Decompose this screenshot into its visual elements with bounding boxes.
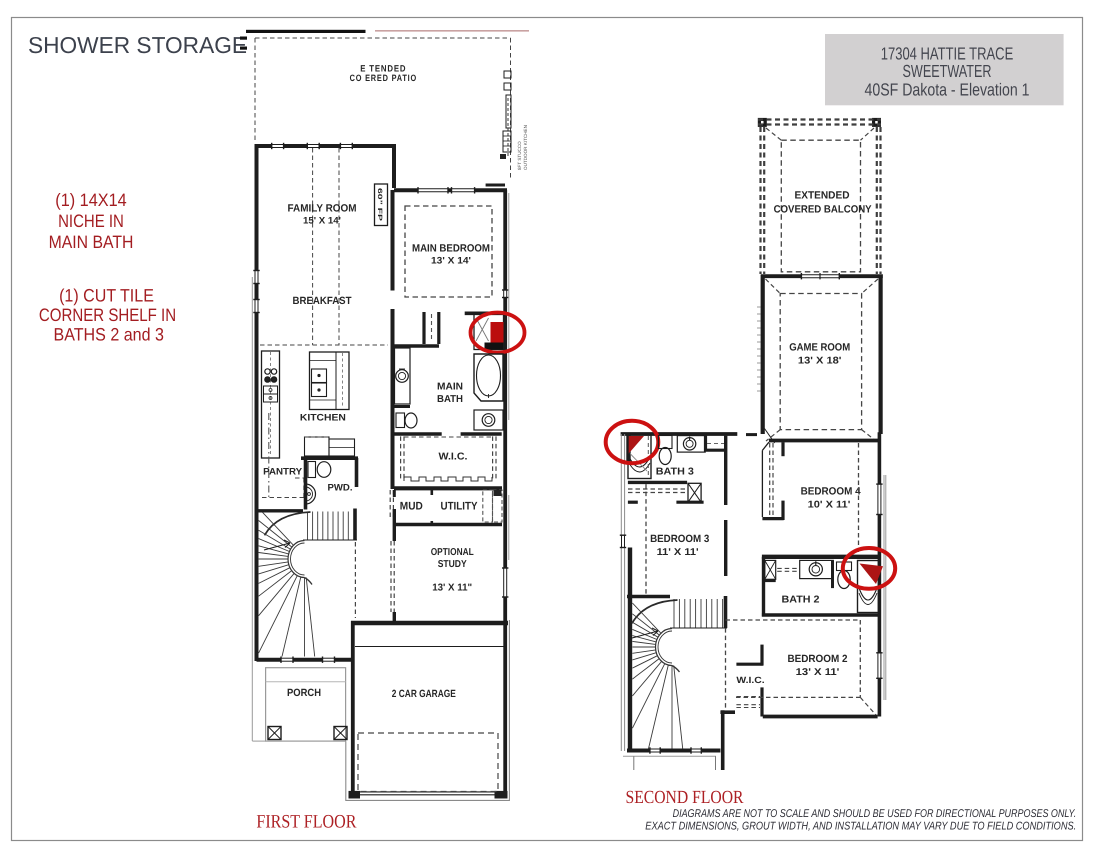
svg-text:15' X 14': 15' X 14' (303, 216, 341, 227)
svg-text:BATHS 2 and 3: BATHS 2 and 3 (54, 325, 164, 345)
svg-text:11' X 11': 11' X 11' (657, 547, 699, 558)
svg-text:CO ERED PATIO: CO ERED PATIO (350, 73, 417, 83)
svg-text:2 CAR GARAGE: 2 CAR GARAGE (392, 688, 456, 700)
svg-text:13' X 14': 13' X 14' (431, 256, 471, 267)
svg-text:SWEETWATER: SWEETWATER (903, 61, 992, 81)
svg-text:PANTRY: PANTRY (263, 467, 303, 478)
svg-text:MAIN: MAIN (437, 382, 463, 393)
svg-text:BATH 2: BATH 2 (782, 595, 820, 606)
svg-text:SHOWER STORAGE: SHOWER STORAGE (28, 32, 247, 58)
svg-text:DIAGRAMS ARE NOT TO SCALE AND: DIAGRAMS ARE NOT TO SCALE AND SHOULD BE … (673, 808, 1077, 820)
svg-text:W.I.C.: W.I.C. (439, 452, 468, 463)
svg-text:PWD.: PWD. (328, 483, 353, 494)
svg-text:OUTDOOR KITCHEN: OUTDOOR KITCHEN (523, 125, 528, 170)
svg-text:EXACT DIMENSIONS, GROUT WIDTH,: EXACT DIMENSIONS, GROUT WIDTH, AND INSTA… (645, 821, 1076, 833)
svg-text:BREAKFAST: BREAKFAST (293, 295, 353, 307)
svg-text:SECOND FLOOR: SECOND FLOOR (626, 788, 745, 808)
svg-text:40SF Dakota - Elevation 1: 40SF Dakota - Elevation 1 (865, 80, 1030, 100)
svg-text:MAIN BATH: MAIN BATH (49, 232, 134, 252)
svg-text:UTILITY: UTILITY (441, 501, 479, 513)
svg-text:10' X 11': 10' X 11' (808, 500, 851, 511)
svg-text:BEDROOM 4: BEDROOM 4 (801, 486, 861, 498)
svg-text:MAIN BEDROOM: MAIN BEDROOM (412, 243, 490, 255)
svg-text:STUDY: STUDY (438, 559, 467, 570)
svg-text:13' X 18': 13' X 18' (798, 356, 842, 367)
svg-text:NICHE IN: NICHE IN (58, 211, 124, 231)
svg-text:MUD: MUD (400, 501, 423, 513)
svg-text:(1) CUT TILE: (1) CUT TILE (59, 286, 154, 306)
svg-text:CORNER SHELF IN: CORNER SHELF IN (39, 305, 176, 325)
svg-text:BEDROOM 2: BEDROOM 2 (787, 653, 847, 665)
svg-text:BEDROOM 3: BEDROOM 3 (650, 533, 709, 545)
svg-text:8FT STUCCO: 8FT STUCCO (517, 141, 522, 170)
svg-text:PORCH: PORCH (287, 687, 321, 699)
svg-text:13' X 11': 13' X 11' (796, 667, 840, 678)
svg-text:OPTIONAL: OPTIONAL (431, 547, 474, 558)
svg-text:FAMILY ROOM: FAMILY ROOM (288, 203, 357, 215)
svg-text:GAME ROOM: GAME ROOM (789, 342, 850, 354)
svg-text:60” FP: 60” FP (376, 188, 383, 221)
svg-text:EXTENDED: EXTENDED (795, 190, 850, 202)
svg-text:BATH 3: BATH 3 (656, 467, 694, 478)
svg-text:KITCHEN: KITCHEN (300, 413, 346, 424)
svg-text:BATH: BATH (437, 394, 463, 405)
svg-text:(1) 14X14: (1) 14X14 (55, 190, 126, 210)
svg-text:13' X 11": 13' X 11" (432, 583, 472, 594)
svg-text:W.I.C.: W.I.C. (736, 675, 764, 685)
svg-text:FIRST FLOOR: FIRST FLOOR (256, 811, 356, 832)
svg-text:COVERED BALCONY: COVERED BALCONY (774, 204, 872, 216)
